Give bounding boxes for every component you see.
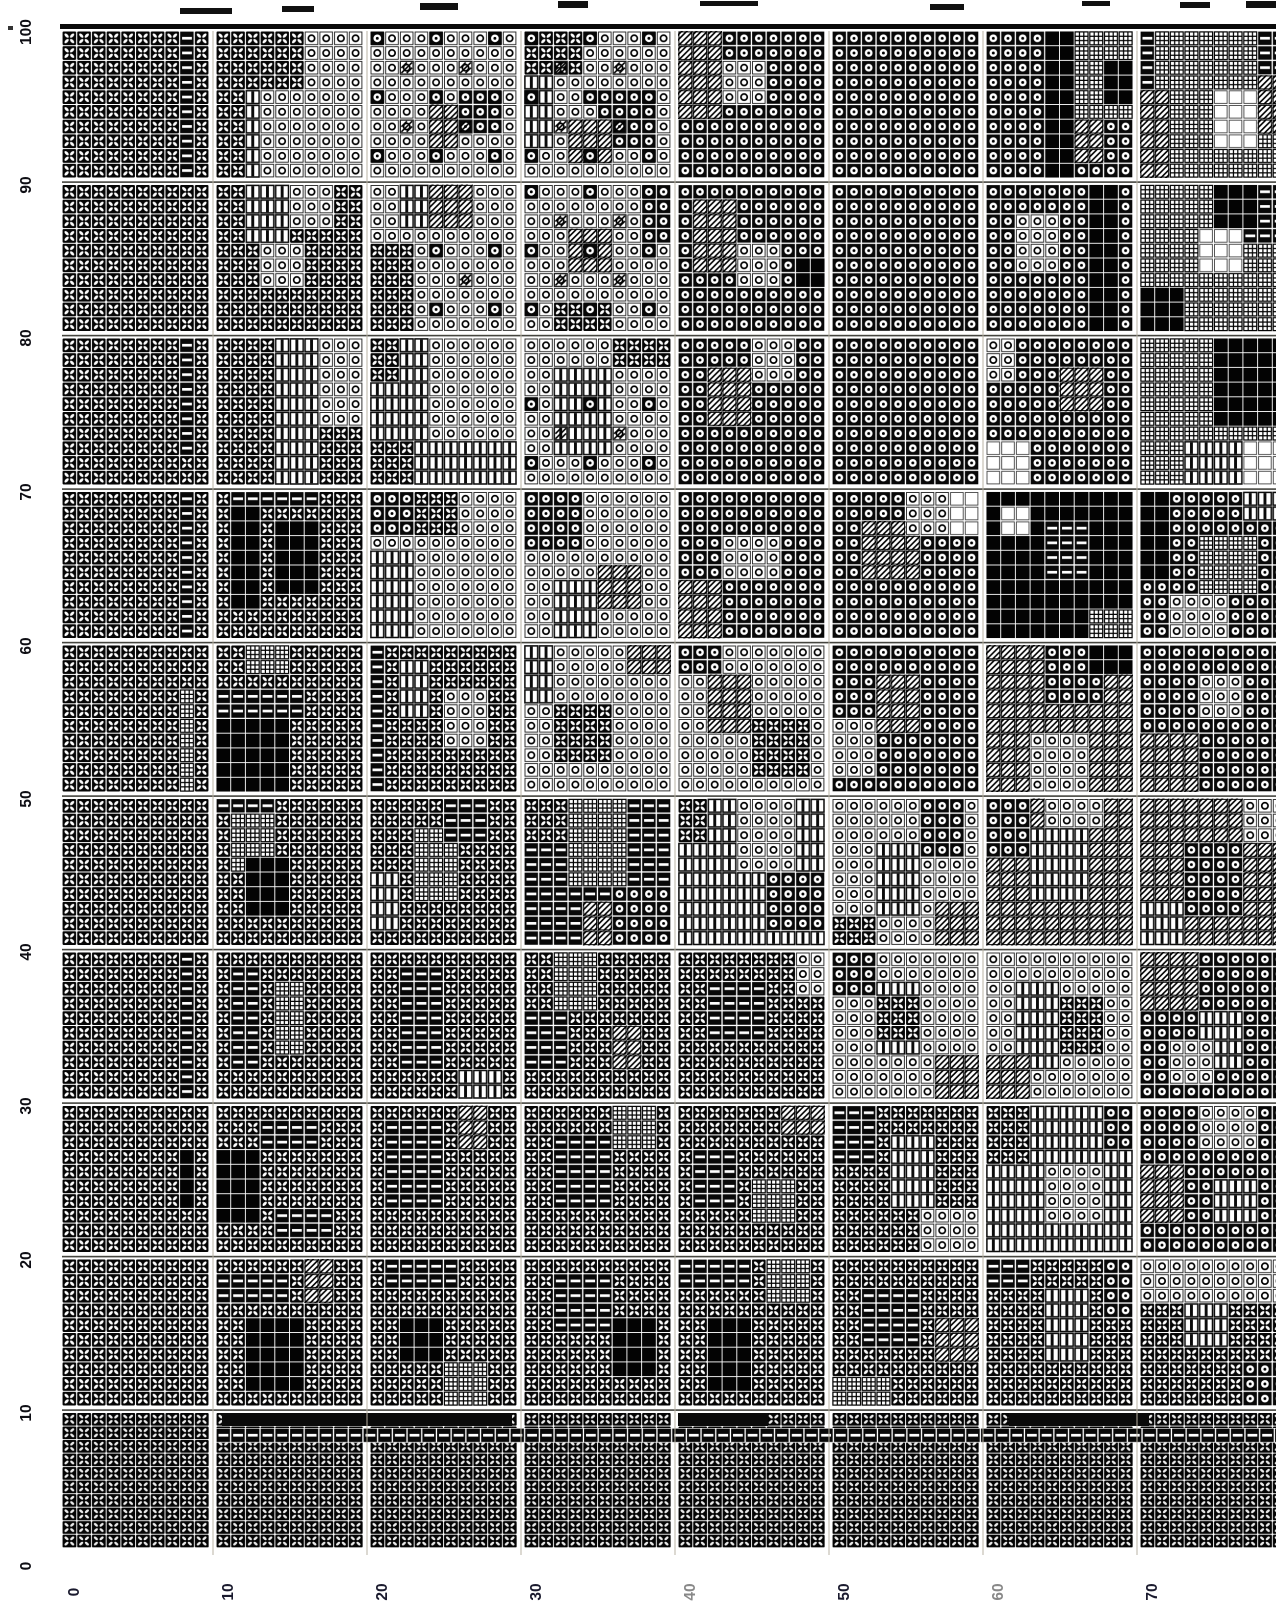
svg-text:10: 10: [220, 1583, 237, 1600]
svg-text:40: 40: [18, 943, 35, 960]
svg-text:80: 80: [18, 329, 35, 346]
svg-text:40: 40: [682, 1583, 699, 1600]
svg-text:60: 60: [18, 637, 35, 654]
svg-text:70: 70: [18, 483, 35, 500]
svg-text:70: 70: [1144, 1583, 1161, 1600]
svg-text:20: 20: [374, 1583, 391, 1600]
svg-text:0: 0: [66, 1588, 83, 1597]
svg-text:30: 30: [528, 1583, 545, 1600]
svg-text:20: 20: [18, 1251, 35, 1268]
svg-text:30: 30: [18, 1097, 35, 1114]
svg-text:10: 10: [18, 1404, 35, 1421]
svg-text:50: 50: [18, 790, 35, 807]
svg-text:50: 50: [836, 1583, 853, 1600]
svg-text:100: 100: [18, 19, 35, 45]
svg-text:90: 90: [18, 176, 35, 193]
svg-text:0: 0: [18, 1562, 35, 1571]
svg-text:60: 60: [990, 1583, 1007, 1600]
